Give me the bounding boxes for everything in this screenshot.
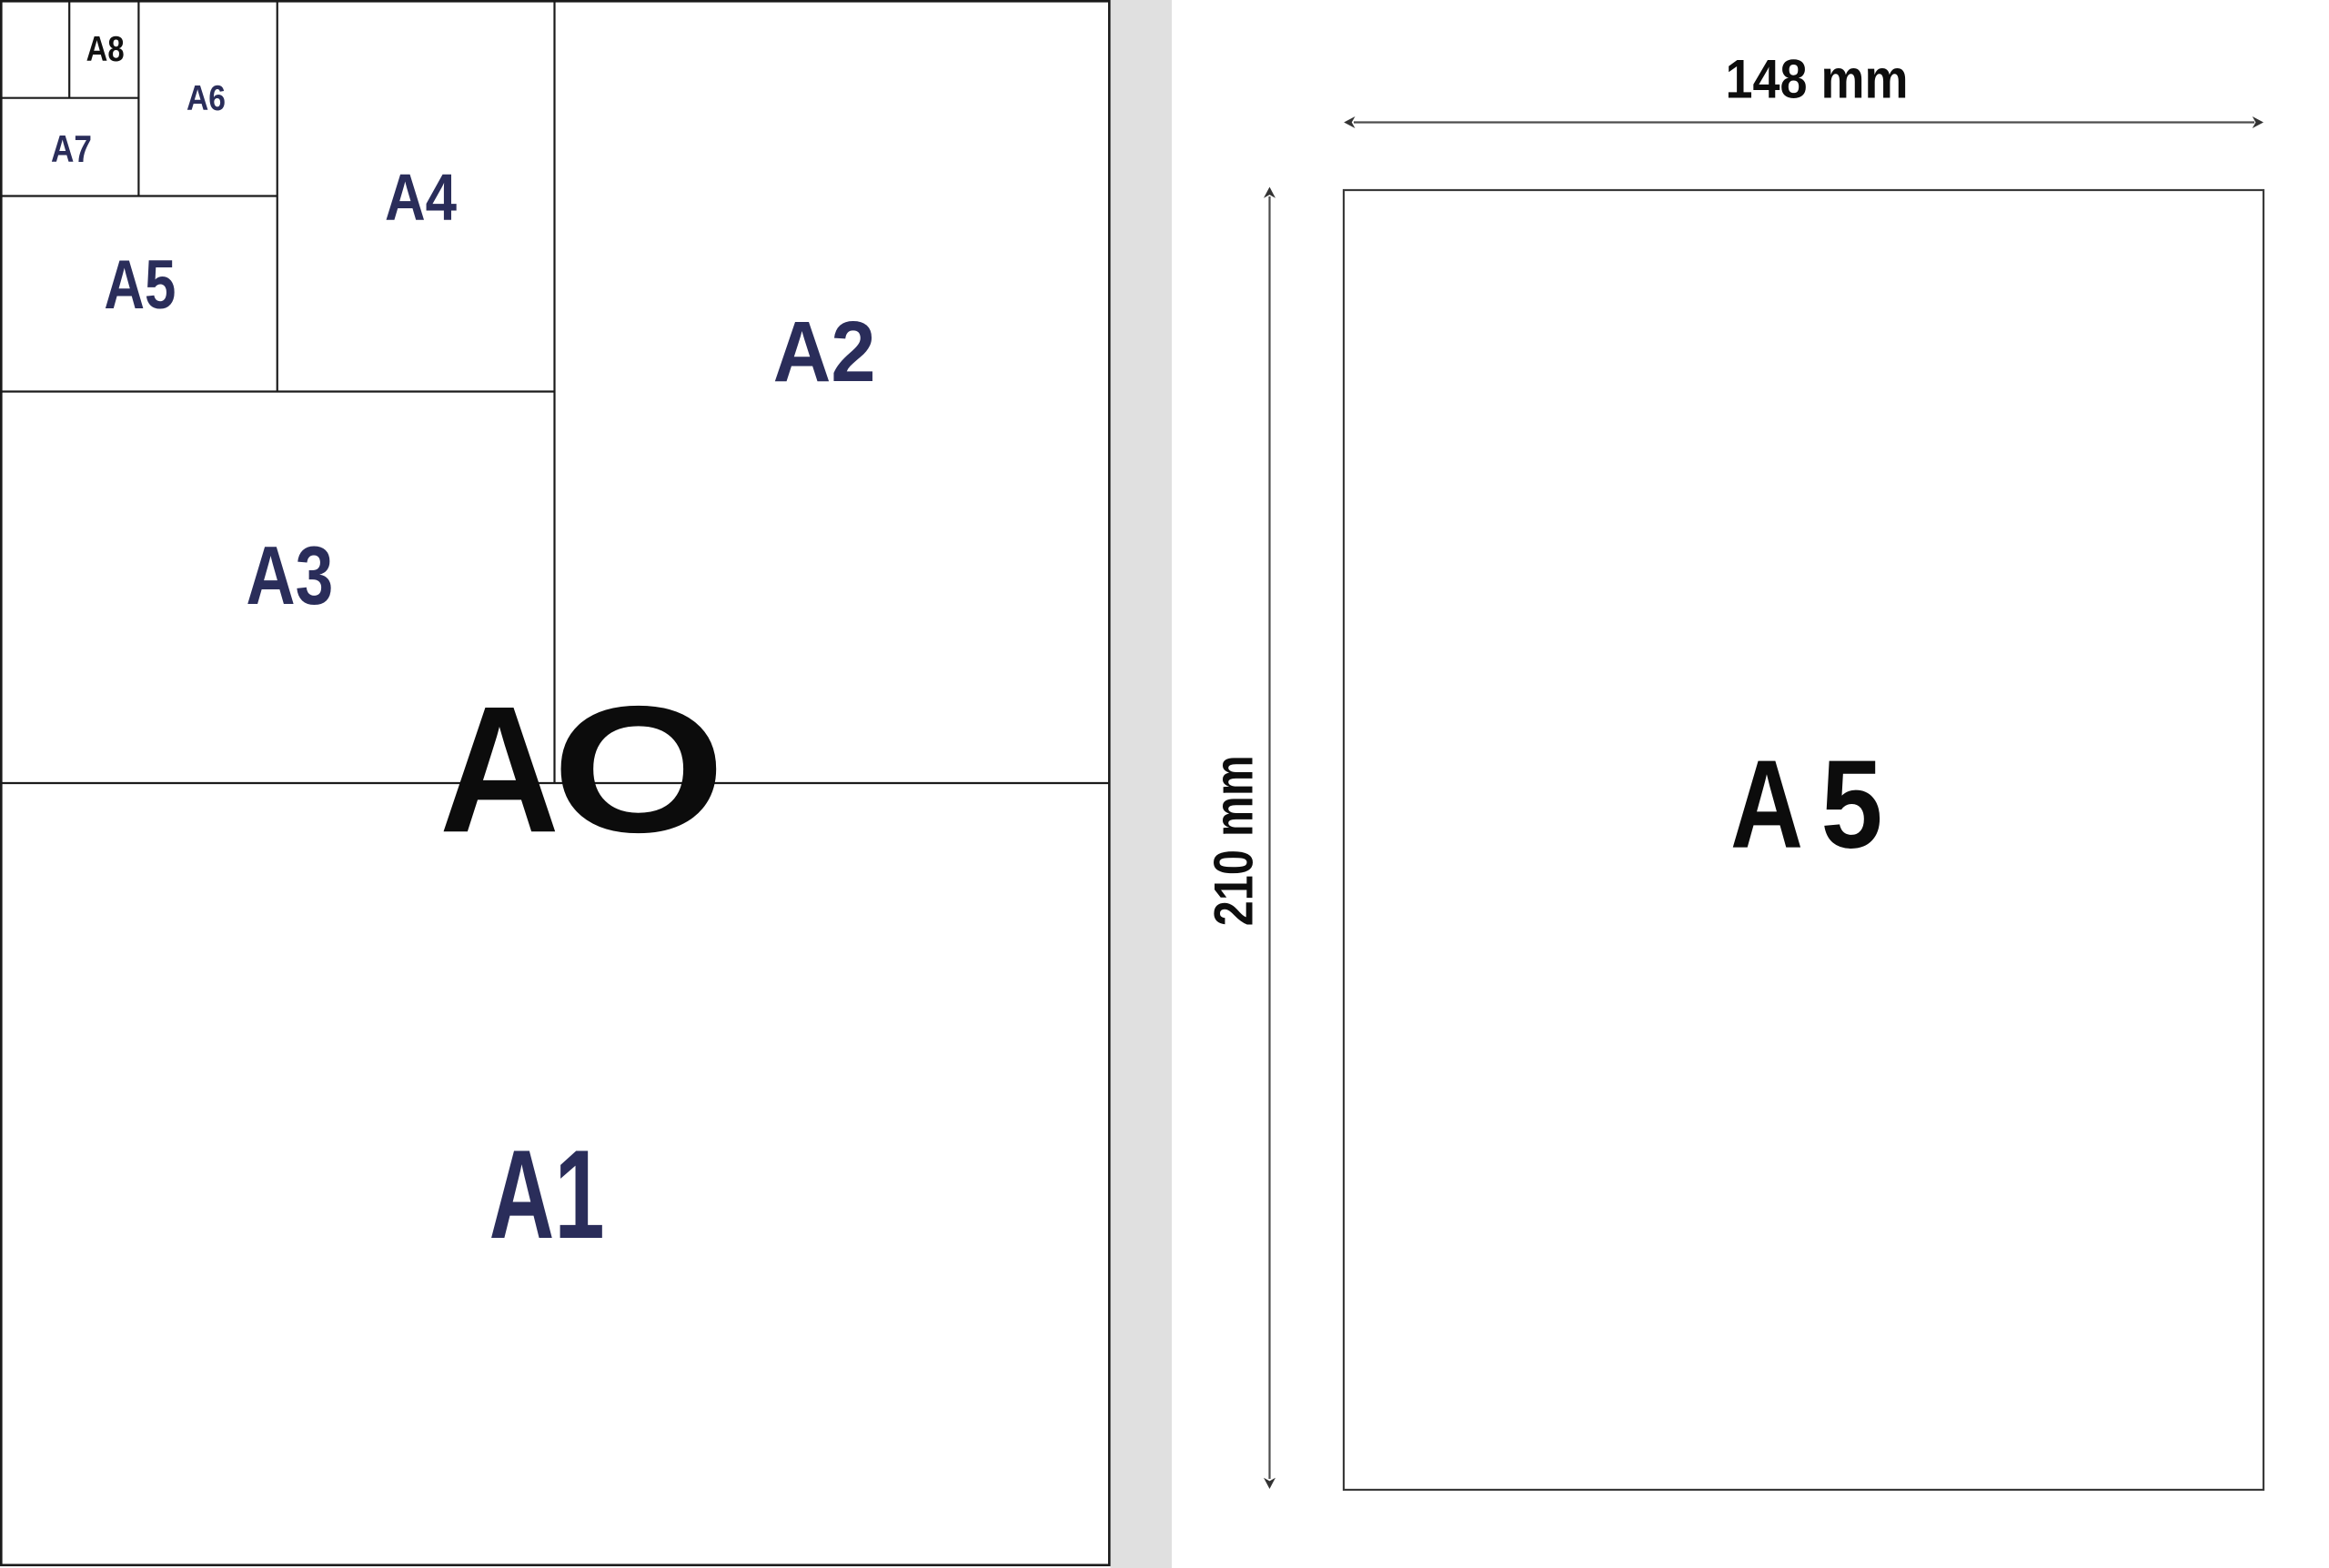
svg-text:A8: A8 <box>86 30 125 69</box>
svg-text:A2: A2 <box>773 304 876 400</box>
svg-text:A: A <box>1730 735 1803 875</box>
svg-text:A1: A1 <box>489 1124 605 1265</box>
svg-text:5: 5 <box>1821 735 1883 875</box>
svg-text:A6: A6 <box>187 79 226 118</box>
svg-text:A7: A7 <box>51 127 92 170</box>
svg-text:O: O <box>552 668 726 869</box>
svg-text:A: A <box>439 668 560 869</box>
svg-text:A3: A3 <box>246 530 333 622</box>
svg-text:210 mm: 210 mm <box>1203 755 1264 926</box>
svg-text:148 mm: 148 mm <box>1726 49 1909 110</box>
svg-text:A5: A5 <box>104 246 176 324</box>
svg-text:A4: A4 <box>385 161 457 234</box>
